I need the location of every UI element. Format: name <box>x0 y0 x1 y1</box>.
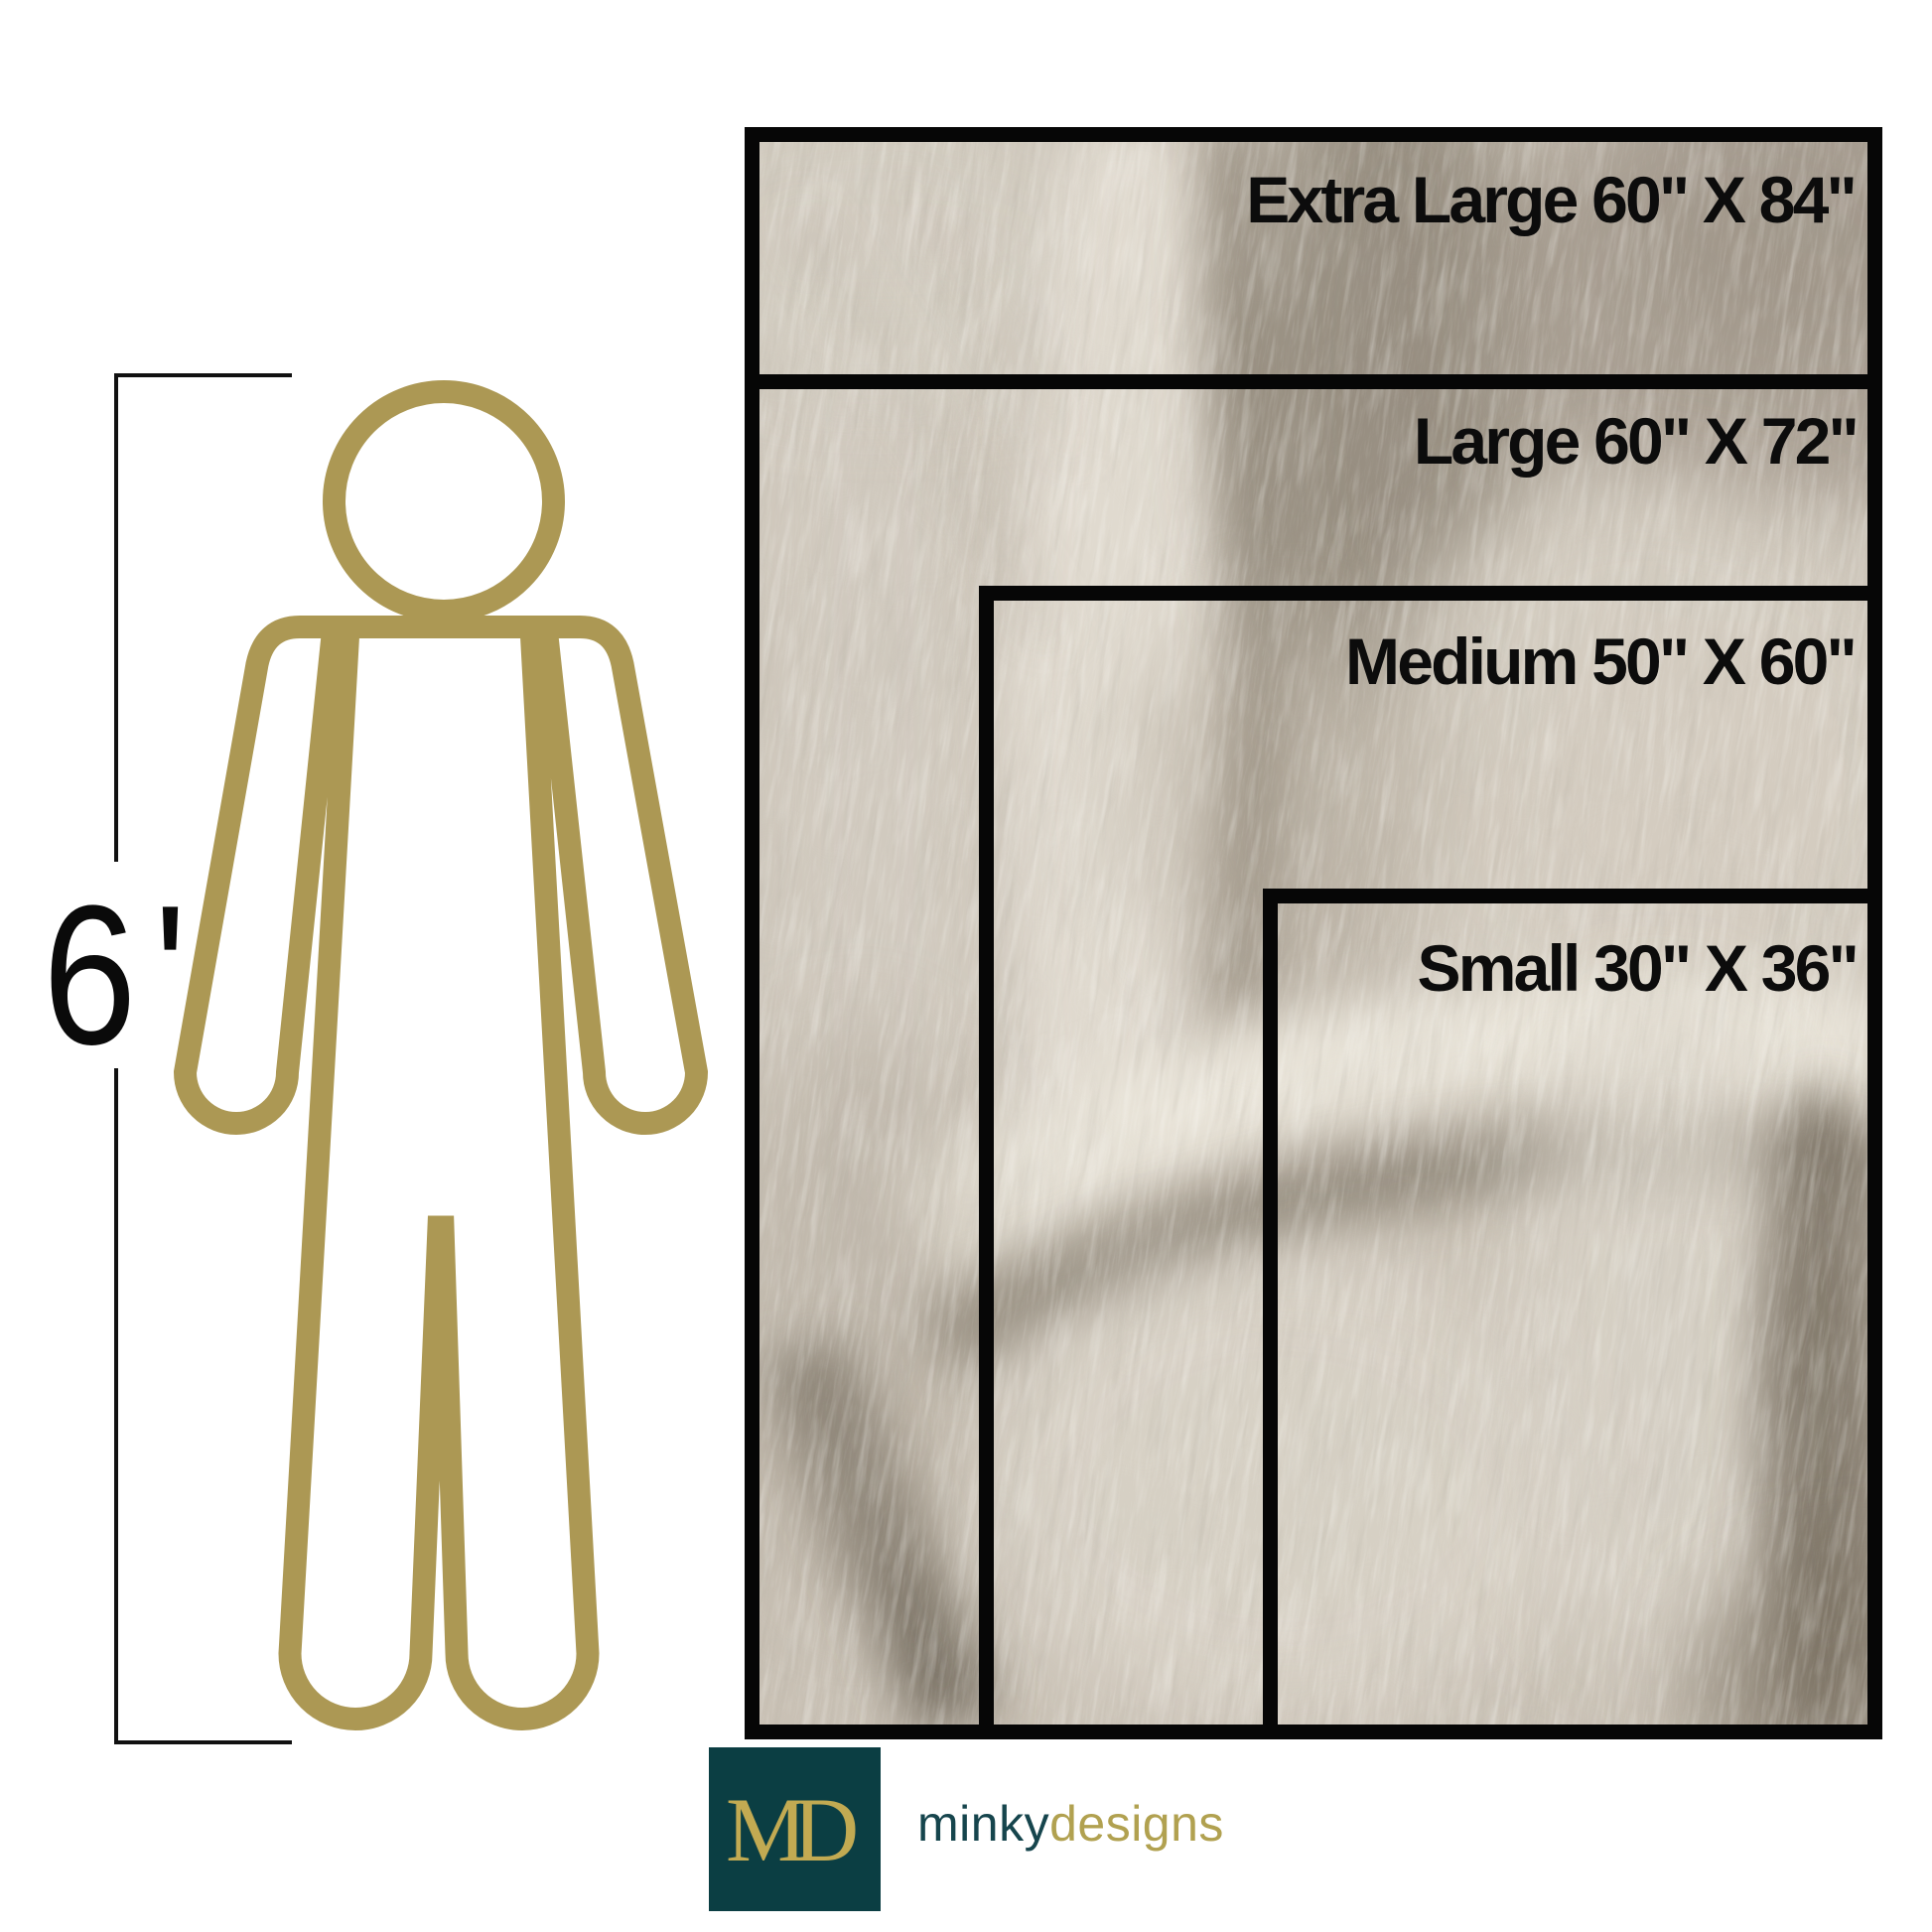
svg-text:Large 60" X 72": Large 60" X 72" <box>1414 404 1857 478</box>
svg-text:Small 30" X 36": Small 30" X 36" <box>1417 931 1857 1005</box>
svg-text:Medium 50" X 60": Medium 50" X 60" <box>1345 624 1855 698</box>
svg-text:Extra Large 60" X 84": Extra Large 60" X 84" <box>1246 163 1855 236</box>
